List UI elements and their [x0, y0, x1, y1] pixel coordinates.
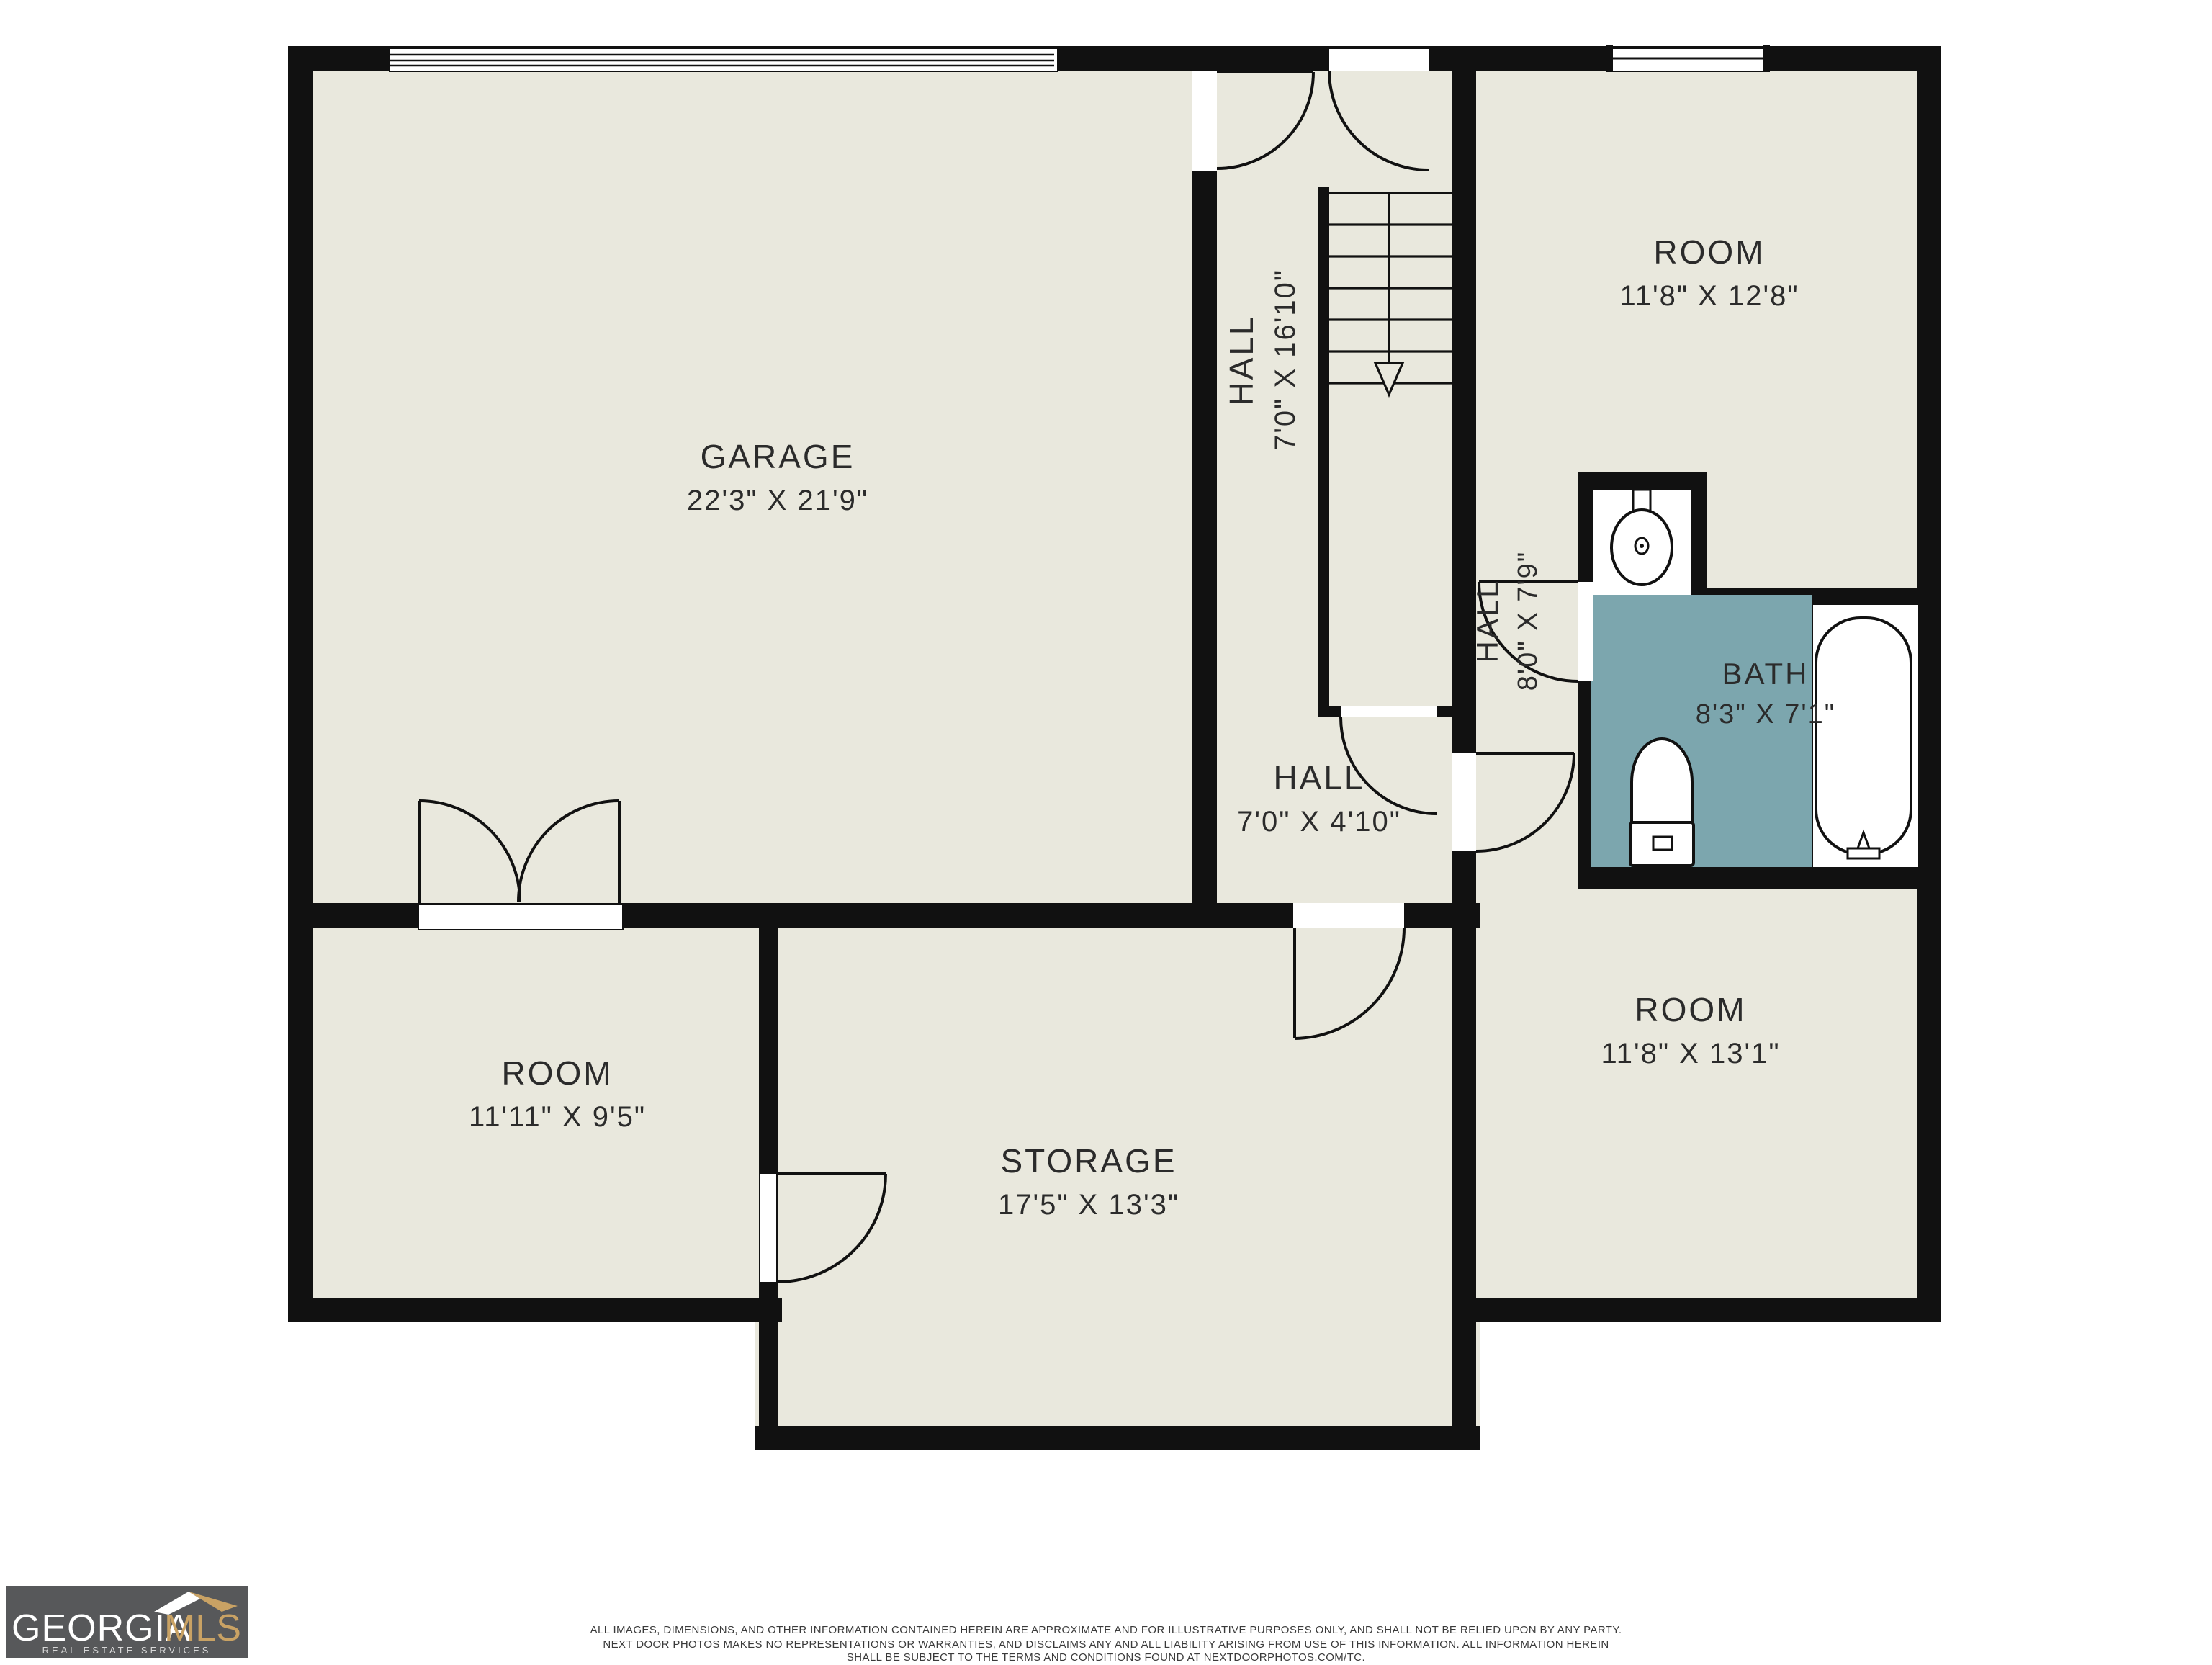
floor-plan-page: GARAGE 22'3" X 21'9" HALL 7'0" X 16'10" …	[0, 0, 2212, 1659]
wall-bath-bottom	[1578, 867, 1941, 889]
wall-left	[288, 46, 313, 1322]
garage-side-door-opening	[1192, 71, 1217, 171]
storage-door-opening	[1293, 903, 1404, 928]
bottomright-room-door-opening	[1452, 753, 1476, 851]
label-room-top-right: ROOM 11'8" X 12'8"	[1619, 236, 1799, 311]
label-storage: STORAGE 17'5" X 13'3"	[998, 1145, 1179, 1220]
label-garage: GARAGE 22'3" X 21'9"	[687, 441, 868, 516]
window-opening	[1609, 48, 1768, 72]
label-hall-stairs: HALL 7'0" X 16'10"	[1226, 269, 1300, 451]
disclaimer: ALL IMAGES, DIMENSIONS, AND OTHER INFORM…	[386, 1623, 1826, 1665]
garage-double-door-opening	[418, 903, 624, 930]
wall-bottomright-room-bottom	[1452, 1298, 1941, 1322]
disclaimer-line: ALL IMAGES, DIMENSIONS, AND OTHER INFORM…	[386, 1623, 1826, 1637]
floor-plan: GARAGE 22'3" X 21'9" HALL 7'0" X 16'10" …	[0, 0, 2212, 1659]
bath-floor	[1591, 595, 1812, 867]
label-room-bottom-right: ROOM 11'8" X 13'1"	[1601, 994, 1780, 1069]
logo-tagline: REAL ESTATE SERVICES	[42, 1645, 212, 1656]
label-hall-lower: HALL 7'0" X 4'10"	[1237, 762, 1401, 837]
wall-bottomleft-room-bottom	[288, 1298, 782, 1322]
wall-right	[1917, 46, 1941, 1322]
logo-text-mls: MLS	[164, 1607, 241, 1649]
wall-sink-alcove-top	[1578, 472, 1707, 490]
garage-door-opening	[389, 48, 1058, 72]
disclaimer-line: NEXT DOOR PHOTOS MAKES NO REPRESENTATION…	[386, 1637, 1826, 1651]
label-hall-vestibule: HALL 8'0" X 7'9"	[1473, 551, 1542, 691]
tub-area-floor	[1812, 605, 1918, 867]
label-room-bottom-left: ROOM 11'11" X 9'5"	[469, 1057, 646, 1132]
stair-closet-door-opening	[1341, 706, 1437, 717]
georgia-mls-logo: GEORGIA MLS REAL ESTATE SERVICES	[6, 1586, 248, 1658]
disclaimer-line: SHALL BE SUBJECT TO THE TERMS AND CONDIT…	[386, 1651, 1826, 1664]
entry-door-opening	[1329, 49, 1429, 71]
wall-storage-left	[759, 928, 778, 1450]
wall-storage-bottom	[755, 1426, 1480, 1450]
bath-door-opening	[1578, 582, 1593, 681]
wall-garage-hall	[1192, 71, 1217, 928]
wall-stair-left	[1318, 187, 1329, 717]
sink-alcove-floor	[1593, 490, 1691, 595]
label-bath: BATH 8'3" X 7'1"	[1696, 660, 1836, 729]
